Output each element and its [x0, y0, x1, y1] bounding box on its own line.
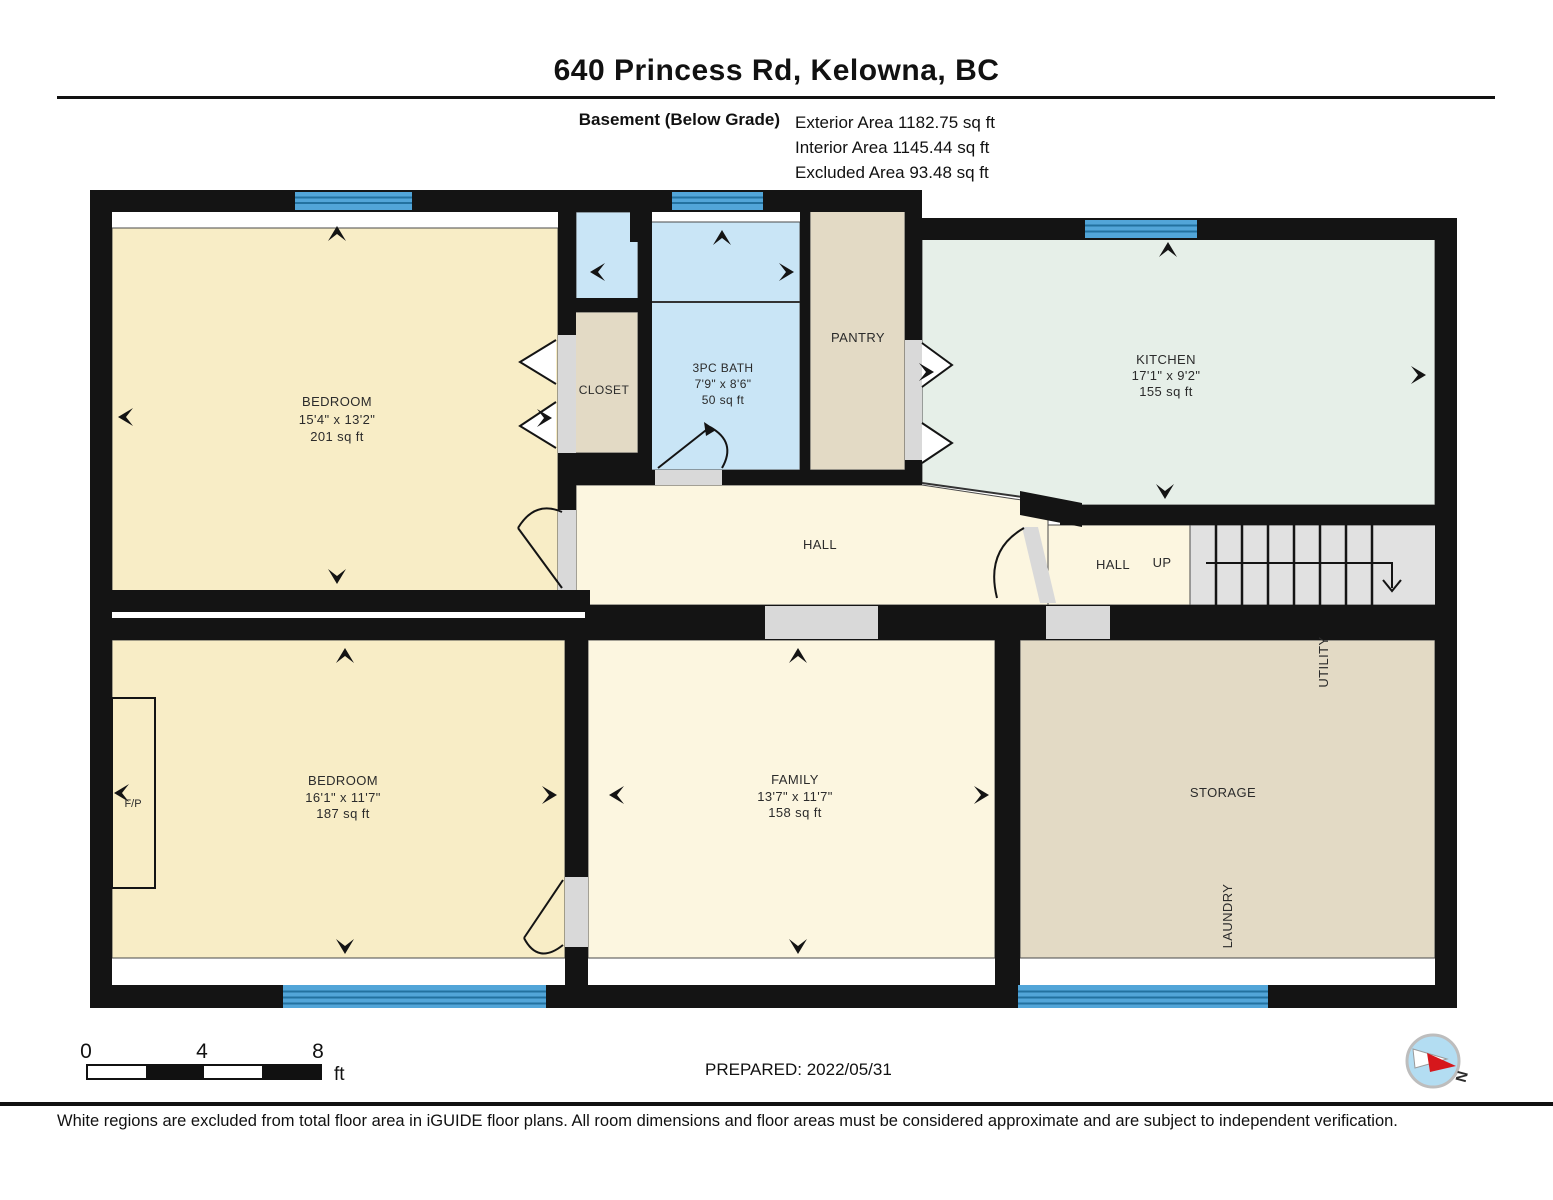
window	[1085, 220, 1197, 238]
window	[283, 985, 546, 1008]
scale-tick-0: 0	[71, 1040, 101, 1064]
bedroom-lower-dims: 16'1" x 11'7"	[305, 790, 381, 805]
floor-label: Basement (Below Grade)	[430, 110, 780, 130]
bedroom-lower-name: BEDROOM	[308, 773, 378, 788]
scale-bar: 0 4 8 ft	[86, 1040, 406, 1080]
window	[295, 192, 412, 210]
bedroom-upper-door-opening	[558, 510, 576, 590]
scale-bar-segments	[86, 1064, 322, 1080]
staircase	[1190, 525, 1437, 605]
closet-name: CLOSET	[579, 383, 630, 397]
area-summary: Exterior Area 1182.75 sq ft Interior Are…	[795, 110, 995, 185]
scale-ticks: 0 4 8	[86, 1040, 406, 1064]
bedroom-upper-name: BEDROOM	[302, 394, 372, 409]
hall-name: HALL	[803, 537, 837, 552]
footer-divider	[0, 1102, 1553, 1106]
compass-icon: N	[1400, 1028, 1484, 1104]
bath-dims: 7'9" x 8'6"	[695, 377, 752, 391]
scale-unit: ft	[334, 1064, 345, 1086]
floorplan: BEDROOM 15'4" x 13'2" 201 sq ft CLOSET 3…	[0, 190, 1553, 1010]
family-door-opening	[765, 606, 878, 639]
page-title: 640 Princess Rd, Kelowna, BC	[0, 54, 1553, 88]
room-fills	[112, 210, 1437, 958]
family-name: FAMILY	[771, 772, 819, 787]
scale-tick-8: 8	[303, 1040, 333, 1064]
exterior-area: Exterior Area 1182.75 sq ft	[795, 110, 995, 135]
bath-area: 50 sq ft	[702, 393, 745, 407]
laundry-name: LAUNDRY	[1220, 884, 1235, 949]
hall-stairs-name: HALL	[1096, 557, 1130, 572]
fireplace-label: F/P	[124, 798, 141, 810]
bath-door-opening	[655, 470, 722, 485]
prepared-date: PREPARED: 2022/05/31	[705, 1060, 892, 1080]
bedroom-lower-door-opening	[565, 877, 588, 947]
title-divider	[57, 96, 1495, 99]
bath-name: 3PC BATH	[693, 361, 754, 375]
storage-door-opening	[1046, 606, 1110, 639]
bath-window-nook	[576, 212, 638, 300]
compass-north-label: N	[1451, 1069, 1470, 1084]
scale-tick-4: 4	[187, 1040, 217, 1064]
family-dims: 13'7" x 11'7"	[757, 789, 833, 804]
family-area: 158 sq ft	[768, 805, 821, 820]
interior-area: Interior Area 1145.44 sq ft	[795, 135, 995, 160]
storage-name: STORAGE	[1190, 785, 1256, 800]
bedroom-upper-area: 201 sq ft	[310, 429, 363, 444]
excluded-area: Excluded Area 93.48 sq ft	[795, 160, 995, 185]
pantry-door-opening	[905, 340, 922, 460]
room-bath	[650, 222, 800, 470]
window	[672, 192, 763, 210]
window	[1018, 985, 1268, 1008]
kitchen-name: KITCHEN	[1136, 352, 1196, 367]
kitchen-dims: 17'1" x 9'2"	[1132, 368, 1201, 383]
pantry-name: PANTRY	[831, 330, 885, 345]
utility-name: UTILITY	[1316, 636, 1331, 687]
stairs-up-label: UP	[1153, 555, 1172, 570]
bedroom-lower-area: 187 sq ft	[316, 806, 369, 821]
bedroom-upper-dims: 15'4" x 13'2"	[299, 412, 376, 427]
kitchen-area: 155 sq ft	[1139, 384, 1192, 399]
closet-door-opening	[558, 335, 576, 453]
room-bedroom-upper	[112, 228, 558, 592]
disclaimer-text: White regions are excluded from total fl…	[57, 1112, 1457, 1131]
